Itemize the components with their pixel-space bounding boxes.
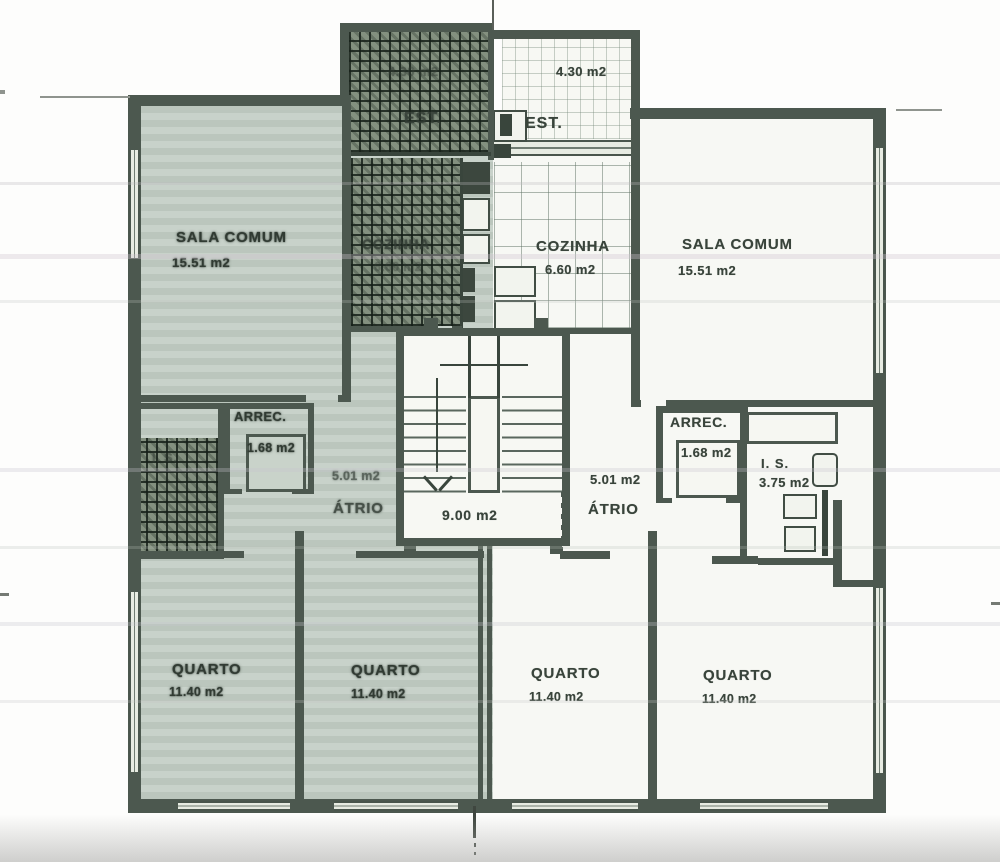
- wall-stair-stub-tr: [534, 318, 548, 328]
- room-area-atrio-left: 5.01 m2: [332, 469, 380, 483]
- wall-top-right: [630, 108, 880, 119]
- stair-well-opening: [468, 396, 500, 493]
- room-area-quarto2: 11.40 m2: [351, 687, 406, 701]
- crease-dot-1: [474, 843, 476, 847]
- est-dark-square: [493, 144, 511, 158]
- room-area-quarto4: 11.40 m2: [702, 692, 757, 706]
- room-area-cozinha-left: 6.60 m2: [374, 260, 422, 274]
- wall-stair-left: [396, 328, 404, 546]
- wall-arrec-right-side1: [656, 406, 663, 500]
- stair-center-line-1: [468, 336, 471, 398]
- wall-quarto3-4-divider: [648, 531, 657, 800]
- room-label-is-left: I. S.: [152, 450, 177, 465]
- edge-tick-top-left: [0, 90, 5, 94]
- room-area-arrec-left: 1.68 m2: [247, 441, 295, 455]
- wall-est-top-right: [490, 30, 640, 39]
- stair-treads-right: [502, 396, 562, 493]
- wall-is-left-top: [134, 403, 224, 409]
- est-left-hatch: [349, 31, 489, 152]
- room-area-stairwell: 9.00 m2: [442, 507, 498, 523]
- window-left-quarto: [129, 592, 140, 772]
- wall-arrec-right-top: [656, 406, 748, 413]
- room-label-quarto1: QUARTO: [172, 661, 242, 678]
- est-fixture-dark: [500, 114, 512, 136]
- wall-est-divider: [488, 23, 494, 160]
- is-right-sink: [812, 453, 838, 487]
- wall-shaft-bottom: [833, 580, 878, 587]
- room-label-quarto3: QUARTO: [531, 665, 601, 682]
- wall-stair-bottom: [396, 538, 570, 546]
- wall-arrec-left-side2: [308, 403, 314, 493]
- wall-est-left-bottom: [346, 152, 491, 156]
- room-area-quarto3: 11.40 m2: [529, 690, 584, 704]
- kitchen-counter-1: [494, 266, 536, 297]
- wall-arrec-left-doorstub2: [292, 489, 314, 494]
- wall-arrec-left-doorstub1: [224, 489, 242, 494]
- window-bottom-quarto2: [334, 801, 458, 811]
- room-label-sala-left: SALA COMUM: [176, 229, 287, 246]
- room-area-cozinha-right: 6.60 m2: [545, 262, 596, 277]
- wall-apartment-divider-2: [487, 546, 492, 800]
- room-label-arrec-right: ARREC.: [670, 414, 727, 430]
- window-bottom-quarto4: [700, 801, 828, 811]
- is-right-bidet: [784, 526, 816, 552]
- wall-arrec-right-doorstub1: [656, 498, 672, 503]
- window-right-sala: [874, 148, 885, 373]
- room-label-atrio-right: ÁTRIO: [588, 501, 639, 518]
- room-label-quarto2: QUARTO: [351, 662, 421, 679]
- wall-atrio-right-bottom-1: [560, 551, 610, 559]
- room-area-arrec-right: 1.68 m2: [681, 445, 732, 460]
- wall-apartment-divider-1: [478, 546, 483, 800]
- wall-arrec-left-side1: [224, 403, 230, 493]
- reference-line-top-left: [40, 96, 130, 98]
- stair-center-line-2: [497, 336, 500, 398]
- wall-stair-stub-bl: [404, 546, 416, 554]
- wall-top-left: [128, 95, 350, 106]
- window-bottom-quarto1: [178, 801, 290, 811]
- duct-box-1: [462, 198, 490, 231]
- room-label-est-right: EST.: [525, 115, 563, 133]
- wall-sala-right-side: [631, 108, 640, 407]
- room-label-est-left: EST.: [404, 110, 442, 128]
- stair-landing-line: [440, 364, 528, 366]
- wall-atrio-left-bottom-1: [132, 551, 244, 558]
- room-area-sala-left: 15.51 m2: [172, 255, 230, 270]
- wall-est-right-side: [631, 30, 640, 112]
- wall-sala-left-bottom: [132, 395, 306, 402]
- room-label-is-right: I. S.: [761, 456, 789, 471]
- room-area-atrio-right: 5.01 m2: [590, 472, 641, 487]
- room-label-cozinha-left: COZINHA: [362, 236, 430, 252]
- stair-arrow-stem: [436, 378, 438, 472]
- is-right-toilet: [783, 494, 817, 519]
- wall-is-right-bottom-1: [712, 556, 758, 564]
- room-label-sala-right: SALA COMUM: [682, 236, 793, 253]
- wall-est-left-side: [340, 23, 349, 99]
- crease-line-bottom: [473, 806, 476, 838]
- room-label-cozinha-right: COZINHA: [536, 238, 610, 255]
- is-right-closet: [746, 412, 838, 444]
- reference-line-top-right: [896, 109, 942, 111]
- room-area-est-left: 4.30 m2: [388, 64, 439, 79]
- wall-sala-right-bottom-stub: [631, 400, 641, 407]
- window-left-sala: [129, 150, 140, 258]
- wall-is-right-side: [833, 500, 842, 587]
- scan-bottom-gradient: [0, 815, 1000, 862]
- wall-center-column-line: [460, 158, 463, 328]
- room-area-quarto1: 11.40 m2: [169, 685, 224, 699]
- room-label-atrio-left: ÁTRIO: [333, 500, 384, 517]
- room-area-is-right: 3.75 m2: [759, 475, 810, 490]
- est-right-window-band: [493, 140, 631, 156]
- room-label-quarto4: QUARTO: [703, 667, 773, 684]
- wall-stair-stub-br: [550, 546, 562, 554]
- wall-stair-right: [562, 328, 570, 546]
- room-label-arrec-left: ARREC.: [234, 409, 286, 424]
- wall-is-right-left: [740, 428, 747, 558]
- wall-est-top-left: [340, 23, 493, 32]
- room-area-est-right: 4.30 m2: [556, 64, 607, 79]
- edge-tick-right: [991, 602, 1000, 605]
- wall-sala-left-bottom-stub: [338, 395, 350, 402]
- wall-stair-top: [396, 328, 570, 336]
- wall-sala-left-side: [342, 95, 351, 402]
- edge-tick-left: [0, 593, 9, 596]
- window-bottom-quarto3: [512, 801, 638, 811]
- stair-treads-left: [404, 396, 466, 493]
- wall-quarto1-2-divider: [295, 531, 304, 800]
- crease-line-top: [492, 0, 494, 30]
- window-right-quarto: [874, 588, 885, 773]
- crease-dot-2: [474, 852, 476, 855]
- room-area-sala-right: 15.51 m2: [678, 263, 736, 278]
- wall-stair-stub-tl: [424, 318, 438, 328]
- duct-dark-box: [462, 162, 490, 194]
- is-right-fixture-wall: [822, 490, 828, 556]
- floor-plan-canvas: 4.30 m2 EST. 4.30 m2 EST. SALA COMUM 15.…: [0, 0, 1000, 862]
- wall-atrio-left-bottom-2: [356, 551, 484, 558]
- wall-is-right-bottom-2: [758, 558, 833, 565]
- duct-box-2: [462, 234, 490, 264]
